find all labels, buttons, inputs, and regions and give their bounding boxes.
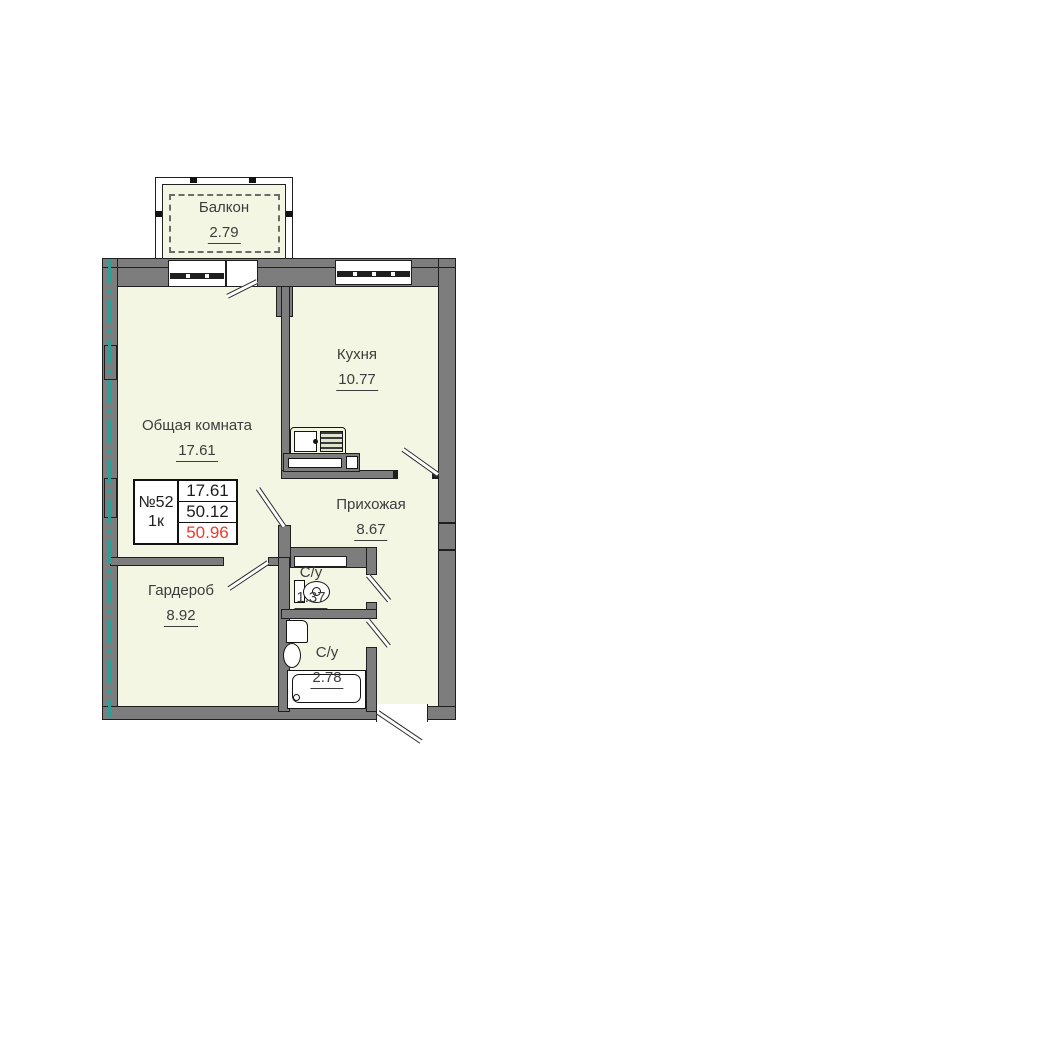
room-label-bathroom: С/у 2.78 <box>310 644 343 689</box>
kitchen-counter-slot <box>288 458 342 468</box>
room-label-wardrobe: Гардероб 8.92 <box>148 582 214 627</box>
room-area: 2.79 <box>207 224 240 244</box>
living-area-value: 17.61 <box>179 481 236 502</box>
wall-wc-bathroom <box>281 609 377 619</box>
wall-seam <box>258 267 335 268</box>
room-label-living-room: Общая комната 17.61 <box>142 417 252 462</box>
room-name: Гардероб <box>148 582 214 600</box>
room-area: 8.92 <box>164 607 197 627</box>
wall-seam <box>103 267 168 268</box>
wall-wc-right-upper <box>366 547 377 575</box>
living-room-window-sill <box>170 273 224 279</box>
wall-seam <box>412 267 456 268</box>
room-label-kitchen: Кухня 10.77 <box>336 346 378 391</box>
room-area: 17.61 <box>176 442 218 462</box>
room-label-hallway: Прихожая 8.67 <box>336 496 406 541</box>
washing-machine <box>286 620 308 643</box>
wall-wardrobe-top <box>110 557 224 566</box>
balcony-mullion-tick <box>286 211 293 217</box>
wall-seam <box>439 549 455 551</box>
wall-right-exterior <box>438 258 456 720</box>
room-area: 1.37 <box>294 589 327 609</box>
room-name: С/у <box>310 644 343 662</box>
axis-line <box>108 260 111 718</box>
room-name: Кухня <box>336 346 378 364</box>
balcony-mullion-tick <box>190 177 197 183</box>
apartment-id-cell: №52 1к <box>135 481 179 543</box>
apartment-areas-cells: 17.61 50.12 50.96 <box>179 481 236 543</box>
wall-seam <box>439 522 455 524</box>
room-name: Балкон <box>199 199 249 217</box>
wall-kitchen-living <box>281 286 290 472</box>
apartment-info-card: №52 1к 17.61 50.12 50.96 <box>133 479 238 545</box>
bathtub-drain-icon <box>293 694 300 701</box>
balcony-mullion-tick <box>249 177 256 183</box>
kitchen-window-sill <box>337 271 410 277</box>
room-area: 10.77 <box>336 371 378 391</box>
kitchen-drainboard <box>320 431 343 452</box>
balcony-mullion-tick <box>155 211 162 217</box>
room-name: Общая комната <box>142 417 252 435</box>
door-jamb <box>393 470 398 479</box>
apartment-rooms-count: 1к <box>148 512 164 531</box>
room-area: 2.78 <box>310 669 343 689</box>
room-label-wc: С/у 1.37 <box>294 564 327 609</box>
kitchen-counter <box>283 453 360 472</box>
kitchen-counter-cabinet <box>346 456 358 469</box>
room-area: 8.67 <box>354 521 387 541</box>
wall-wc-right-lower <box>366 647 377 712</box>
kitchen-faucet-icon <box>313 439 318 444</box>
room-name: С/у <box>294 564 327 582</box>
room-name: Прихожая <box>336 496 406 514</box>
apartment-number: №52 <box>139 493 174 512</box>
floor-plan: Балкон 2.79 Кухня 10.77 Общая комната 17… <box>0 0 1041 1041</box>
total-area-value: 50.96 <box>179 523 236 543</box>
room-label-balcony: Балкон 2.79 <box>199 199 249 244</box>
area-without-balcony-value: 50.12 <box>179 502 236 523</box>
bathroom-sink <box>283 643 301 668</box>
